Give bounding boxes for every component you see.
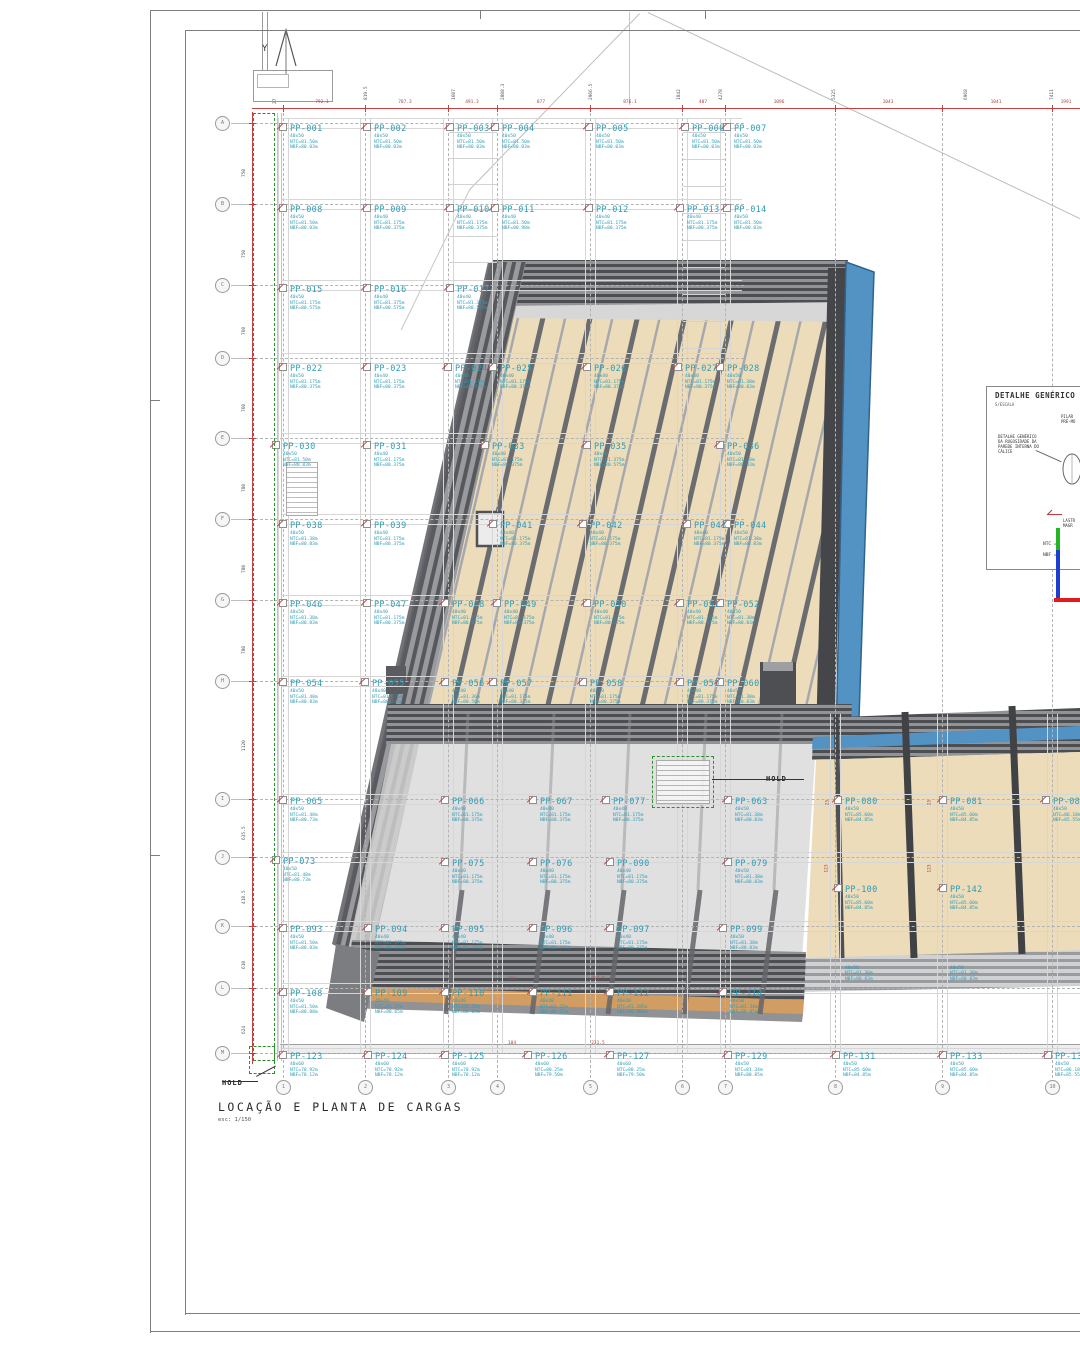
ladder-rung <box>683 267 725 268</box>
pile-properties: 40x50 NTC=81.48m NBF=80.73m <box>290 807 323 823</box>
pile-properties: 40x50 NTC=81.38m NBF=80.83m <box>730 935 763 951</box>
bubble-leader <box>231 204 250 205</box>
pile-properties: 40x50 NTC=81.50m NBF=80.03m <box>374 134 407 150</box>
grid-bubble-col: 3 <box>441 1080 456 1095</box>
pile-label: PP-05440x50 NTC=81.40m NBF=80.83m <box>290 680 323 706</box>
pile-properties: 40x50 NTC=85.60m NBF=84.85m <box>950 1062 983 1078</box>
beam-edge-line <box>947 714 948 1054</box>
pile-properties: 40x50 NTC=81.30m NBF=80.83m <box>950 966 978 982</box>
ladder-rung <box>683 159 725 160</box>
hold-wall-line <box>277 113 278 1061</box>
dim-value-rotated: 819.5 <box>364 60 369 100</box>
entrance-box-top <box>763 662 793 671</box>
beam-edge-line <box>595 118 596 1053</box>
dim-value-rotated: 7411 <box>1050 60 1055 100</box>
pile-properties: 40x50 NTC=81.38m NBF=80.83m <box>727 374 760 390</box>
pile-id: PP-097 <box>617 926 650 935</box>
sheet-fold-tick <box>150 400 160 401</box>
pile-label: PP-09040x40 NTC=81.175m NBF=80.375m <box>617 860 650 886</box>
pile-properties: 40x40 NTC=81.175m NBF=80.375m <box>617 935 650 951</box>
pile-id: PP-046 <box>290 601 323 610</box>
pile-id: PP-124 <box>375 1053 408 1062</box>
hold-boundary-strip <box>253 113 275 1061</box>
pile-label: PP-07340x50 NTC=81.48m NBF=80.73m <box>283 858 316 884</box>
sheet-scale-note: esc: 1/150 <box>218 1117 463 1123</box>
pile-id: PP-010 <box>457 206 490 215</box>
pile-id: PP-123 <box>290 1053 323 1062</box>
pile-label: PP-13140x50 NTC=85.60m NBF=84.85m <box>843 1053 876 1079</box>
grid-bubble-row: B <box>215 197 230 212</box>
pile-label: PP-03040x50 NTC=81.50m NBF=80.83m <box>283 443 316 469</box>
pile-label: PP-01440x50 NTC=81.50m NBF=80.03m <box>734 206 767 232</box>
pile-properties: 40x40 NTC=81.175m NBF=80.375m <box>374 452 407 468</box>
pile-id: PP-036 <box>727 443 760 452</box>
pile-label: PP-12540x60 NTC=78.92m NBF=78.12m <box>452 1053 485 1079</box>
pile-label: PP-03840x50 NTC=81.38m NBF=80.83m <box>290 522 323 548</box>
pile-id: PP-047 <box>374 601 407 610</box>
pile-properties: 40x40 NTC=81.175m NBF=80.375m <box>540 869 573 885</box>
dim-value: 123 <box>825 857 830 881</box>
dim-value: 877 <box>527 100 555 105</box>
pile-id: PP-013 <box>687 206 720 215</box>
pile-id: PP-093 <box>290 926 323 935</box>
pile-label: PP-12940x50 NTC=81.34m NBF=80.85m <box>735 1053 768 1079</box>
pile-label: PP-08140x50 NTC=85.60m NBF=84.85m <box>950 798 983 824</box>
pile-label: 40x50 NTC=81.30m NBF=80.83m <box>845 966 873 982</box>
bubble-leader <box>231 519 250 520</box>
ladder-rung <box>449 236 497 237</box>
pile-label: PP-00940x40 NTC=81.175m NBF=80.375m <box>374 206 407 232</box>
ladder-rung <box>683 294 725 295</box>
dim-value-rotated: 780 <box>242 626 247 654</box>
pile-properties: 40x40 NTC=81.175m NBF=80.375m <box>492 452 525 468</box>
pile-label: PP-04340x40 NTC=81.175m NBF=80.375m <box>694 522 727 548</box>
pile-id: PP-081 <box>950 798 983 807</box>
pile-properties: 40x50 NTC=81.175m NBF=80.375m <box>290 374 323 390</box>
grid-row-centerline <box>250 358 744 359</box>
ladder-rung <box>449 184 497 185</box>
pile-id: PP-135 <box>1055 1053 1080 1062</box>
pile-properties: 40x50 NTC=81.38m NBF=80.83m <box>290 531 323 547</box>
pile-properties: 40x50 NTC=81.175m NBF=80.575m <box>290 295 323 311</box>
pile-properties: 40x50 NTC=81.50m NBF=80.03m <box>692 134 725 150</box>
dimension-line-top <box>252 108 1080 109</box>
pile-properties: 40x50 NTC=85.60m NBF=84.85m <box>950 807 983 823</box>
detail-nbf-label: NBF = <box>1043 553 1057 558</box>
grid-bubble-col: 6 <box>675 1080 690 1095</box>
pile-label: PP-03540x40 NTC=81.375m NBF=80.575m <box>594 443 627 469</box>
pile-label: PP-00540x50 NTC=81.50m NBF=80.03m <box>596 125 629 151</box>
pile-id: PP-076 <box>540 860 573 869</box>
pile-id: PP-114 <box>730 990 763 999</box>
grid-bubble-col: 9 <box>935 1080 950 1095</box>
pile-id: PP-079 <box>735 860 768 869</box>
pile-id: PP-014 <box>734 206 767 215</box>
bubble-leader <box>231 1053 250 1054</box>
sheet-fold-tick <box>705 10 706 19</box>
pile-properties: 40x40 NTC=81.175m NBF=80.375m <box>372 689 405 705</box>
pile-properties: 40x40 NTC=81.36m NBF=80.56m <box>452 689 485 705</box>
bubble-leader <box>231 358 250 359</box>
pile-label: PP-02240x50 NTC=81.175m NBF=80.375m <box>290 365 323 391</box>
ladder-rung <box>683 240 725 241</box>
pile-id: PP-023 <box>374 365 407 374</box>
pile-properties: 40x40 NTC=81.175m NBF=80.375m <box>374 374 407 390</box>
dim-value-rotated: 750 <box>242 149 247 177</box>
hold-label-stairs: HOLD <box>766 766 787 785</box>
pile-id: PP-111 <box>540 990 573 999</box>
pile-properties: 40x50 NTC=81.30m NBF=80.83m <box>845 966 873 982</box>
pile-properties: 40x50 NTC=81.50m NBF=80.03m <box>734 215 767 231</box>
hold-label-bottom: HOLD <box>222 1070 243 1089</box>
pile-id: PP-056 <box>452 680 485 689</box>
pile-id: PP-039 <box>374 522 407 531</box>
detail-rugosidade-label: DETALHE GENÉRICO DA RUGOSIDADE DA PAREDE… <box>998 434 1039 454</box>
sheet-fold-tick <box>150 855 160 856</box>
pile-id: PP-002 <box>374 125 407 134</box>
grid-bubble-row: H <box>215 674 230 689</box>
grid-bubble-row: E <box>215 431 230 446</box>
pile-label: PP-01040x40 NTC=81.175m NBF=80.375m <box>457 206 490 232</box>
dim-value-rotated: 27 <box>273 80 278 104</box>
pile-label: PP-07940x50 NTC=81.38m NBF=80.83m <box>735 860 768 886</box>
pile-label: PP-01140x40 NTC=81.50m NBF=80.98m <box>502 206 535 232</box>
pile-properties: 40x40 NTC=81.175m NBF=80.375m <box>452 807 485 823</box>
hold-boundary-box <box>249 1046 275 1074</box>
pile-properties: 40x50 NTC=85.60m NBF=84.85m <box>845 807 878 823</box>
pile-id: PP-095 <box>452 926 485 935</box>
bubble-leader <box>231 438 250 439</box>
pile-id: PP-035 <box>594 443 627 452</box>
pile-id: PP-058 <box>590 680 623 689</box>
pile-properties: 40x50 NTC=81.40m NBF=80.83m <box>290 689 323 705</box>
dim-value: 1041 <box>982 100 1010 105</box>
sheet-border-top <box>150 10 1080 11</box>
pile-label: PP-10840x50 NTC=81.50m NBF=80.88m <box>290 990 323 1016</box>
pile-id: PP-025 <box>500 365 533 374</box>
pile-label: PP-09740x40 NTC=81.175m NBF=80.375m <box>617 926 650 952</box>
pile-properties: 40x50 NTC=81.38m NBF=80.83m <box>735 807 768 823</box>
pile-id: PP-073 <box>283 858 316 867</box>
beam-edge-line <box>830 714 831 1054</box>
pile-properties: 40x50 NTC=81.38m NBF=80.83m <box>727 610 760 626</box>
pile-id: PP-080 <box>845 798 878 807</box>
pile-id: PP-038 <box>290 522 323 531</box>
sheet-title: LOCAÇÃO E PLANTA DE CARGAS <box>218 1100 463 1114</box>
beam-edge-line <box>282 862 1080 863</box>
beam-edge-line <box>443 118 444 1053</box>
pile-id: PP-017 <box>457 286 490 295</box>
grid-bubble-col: 10 <box>1045 1080 1060 1095</box>
pile-id: PP-027 <box>685 365 718 374</box>
pile-label: PP-07740x40 NTC=81.175m NBF=80.375m <box>613 798 646 824</box>
pile-label: PP-09540x40 NTC=81.175m NBF=80.375m <box>452 926 485 952</box>
pile-label: PP-09940x50 NTC=81.38m NBF=80.83m <box>730 926 763 952</box>
grid-row-centerline <box>250 681 744 682</box>
pile-properties: 40x40 NTC=81.285m NBF=80.605m <box>617 999 650 1015</box>
beam-edge-line <box>677 118 678 1053</box>
beam-edge-line <box>282 1048 1080 1049</box>
dim-value: 231.5 <box>586 977 610 982</box>
bim-model-overlay <box>0 0 1080 1350</box>
pile-id: PP-112 <box>617 990 650 999</box>
grid-bubble-row: A <box>215 116 230 131</box>
pile-id: PP-057 <box>500 680 533 689</box>
dim-value-rotated: 780 <box>242 464 247 492</box>
pile-properties: 40x40 NTC=81.175m NBF=80.375m <box>687 610 720 626</box>
pile-label: PP-00140x50 NTC=81.50m NBF=80.03m <box>290 125 323 151</box>
pile-label: PP-00340x50 NTC=81.50m NBF=80.03m <box>457 125 490 151</box>
dim-value-rotated: 6968 <box>964 60 969 100</box>
pile-label: PP-00740x50 NTC=81.50m NBF=80.03m <box>734 125 767 151</box>
pile-properties: 40x50 NTC=81.50m NBF=80.88m <box>290 999 323 1015</box>
pile-id: PP-006 <box>692 125 725 134</box>
pile-properties: 40x50 NTC=81.50m NBF=80.03m <box>290 215 323 231</box>
hold-detail-box <box>652 756 714 808</box>
pile-id: PP-052 <box>727 601 760 610</box>
beam-edge-line <box>278 118 279 1053</box>
pile-id: PP-007 <box>734 125 767 134</box>
beam-edge-line <box>288 118 289 1053</box>
pile-properties: 40x50 NTC=81.48m NBF=80.73m <box>283 867 316 883</box>
beam-edge-line <box>720 118 721 1053</box>
ladder-rung <box>683 321 725 322</box>
grid-row-centerline <box>250 519 744 520</box>
grid-col-centerline <box>1052 113 1053 1078</box>
pile-properties: 40x40 NTC=81.175m NBF=80.375m <box>504 610 537 626</box>
bubble-leader <box>231 988 250 989</box>
pile-label: PP-05040x40 NTC=81.175m NBF=80.375m <box>594 601 627 627</box>
grid-col-centerline <box>942 113 943 1078</box>
ladder-rung <box>449 262 497 263</box>
pile-properties: 40x40 NTC=81.175m NBF=80.375m <box>590 531 623 547</box>
pile-label: PP-01740x40 NTC=81.375m NBF=80.575m <box>457 286 490 312</box>
beam-edge-line <box>282 595 742 596</box>
pile-properties: 40x50 NTC=85.60m NBF=84.85m <box>843 1062 876 1078</box>
beam-edge-line <box>1047 714 1048 1054</box>
dim-value-rotated: 760 <box>242 384 247 412</box>
dim-value: 1096 <box>765 100 793 105</box>
bubble-leader <box>231 926 250 927</box>
dim-value: 1043 <box>874 100 902 105</box>
pile-id: PP-129 <box>735 1053 768 1062</box>
pile-label: PP-04840x40 NTC=81.175m NBF=80.375m <box>452 601 485 627</box>
grid-row-centerline <box>250 438 744 439</box>
beam-edge-line <box>502 118 503 1053</box>
pile-label: PP-05140x40 NTC=81.175m NBF=80.375m <box>687 601 720 627</box>
pile-properties: 40x40 NTC=81.175m NBF=80.375m <box>452 869 485 885</box>
pile-label: PP-07640x40 NTC=81.175m NBF=80.375m <box>540 860 573 886</box>
pile-id: PP-050 <box>594 601 627 610</box>
pile-label: PP-00440x50 NTC=81.50m NBF=80.03m <box>502 125 535 151</box>
y-axis-label: Y <box>262 44 267 54</box>
pile-label: PP-14240x50 NTC=85.60m NBF=84.85m <box>950 886 983 912</box>
grid-bubble-col: 7 <box>718 1080 733 1095</box>
pile-label: PP-08240x50 NTC=86.18m NBF=85.55m <box>1053 798 1080 824</box>
dim-value: 25 <box>928 791 933 815</box>
pile-label: PP-13540x50 NTC=86.18m NBF=85.55m <box>1055 1053 1080 1079</box>
grid-col-centerline <box>835 113 836 1078</box>
pile-id: PP-065 <box>290 798 323 807</box>
axis-blue-segment <box>1056 550 1060 602</box>
pile-id: PP-011 <box>502 206 535 215</box>
pile-properties: 40x50 NTC=81.50m NBF=80.83m <box>290 935 323 951</box>
bubble-leader <box>231 799 250 800</box>
detail-lastro-label: LASTR MAGR <box>1063 518 1075 528</box>
grid-bubble-col: 8 <box>828 1080 843 1095</box>
pile-properties: 40x40 NTC=81.175m NBF=80.375m <box>374 215 407 231</box>
pile-id: PP-033 <box>492 443 525 452</box>
pile-id: PP-133 <box>950 1053 983 1062</box>
pile-id: PP-066 <box>452 798 485 807</box>
pile-properties: 40x60 NTC=80.25m NBF=79.50m <box>535 1062 568 1078</box>
pile-label: PP-05840x40 NTC=81.175m NBF=80.375m <box>590 680 623 706</box>
pile-properties: 40x50 NTC=81.34m NBF=80.85m <box>735 1062 768 1078</box>
grid-bubble-col: 5 <box>583 1080 598 1095</box>
pile-id: PP-110 <box>452 990 485 999</box>
detail-pilar-label: PILAR PRÉ-MO <box>1061 414 1075 424</box>
grid-bubble-col: 1 <box>276 1080 291 1095</box>
pile-id: PP-096 <box>540 926 573 935</box>
pile-label: PP-02540x40 NTC=81.175m NBF=80.375m <box>500 365 533 391</box>
dim-value: 787.3 <box>391 100 419 105</box>
pile-id: PP-126 <box>535 1053 568 1062</box>
pile-label: PP-02740x40 NTC=81.175m NBF=80.375m <box>685 365 718 391</box>
dim-value-rotated: 2808.3 <box>501 60 506 100</box>
pile-id: PP-090 <box>617 860 650 869</box>
sheet-border-bottom <box>150 1331 1080 1332</box>
pile-label: PP-01640x40 NTC=81.375m NBF=80.575m <box>374 286 407 312</box>
level-tick <box>1048 514 1062 515</box>
pile-label: PP-04240x40 NTC=81.175m NBF=80.375m <box>590 522 623 548</box>
pile-label: PP-05240x50 NTC=81.38m NBF=80.83m <box>727 601 760 627</box>
dim-value: 104 <box>500 1041 524 1046</box>
dim-value-rotated: 750 <box>242 230 247 258</box>
beam-edge-line <box>585 118 586 1053</box>
pile-properties: 40x40 NTC=81.175m NBF=80.375m <box>374 531 407 547</box>
pile-properties: 40x50 NTC=86.18m NBF=85.55m <box>1055 1062 1080 1078</box>
sheet-fold-tick <box>480 10 481 19</box>
pile-label: PP-04940x40 NTC=81.175m NBF=80.375m <box>504 601 537 627</box>
pile-properties: 40x40 NTC=81.175m NBF=80.375m <box>594 374 627 390</box>
pile-label: PP-06740x40 NTC=81.175m NBF=80.375m <box>540 798 573 824</box>
pile-properties: 40x40 NTC=81.175m NBF=80.375m <box>596 215 629 231</box>
pile-label: 40x50 NTC=81.30m NBF=80.83m <box>950 966 978 982</box>
pile-properties: 40x50 NTC=85.60m NBF=84.85m <box>950 895 983 911</box>
pile-label: PP-06040x50 NTC=81.38m NBF=80.83m <box>727 680 760 706</box>
grid-bubble-row: F <box>215 512 230 527</box>
beam-edge-line <box>1057 714 1058 1054</box>
bubble-leader <box>231 857 250 858</box>
beam-edge-line <box>282 852 1080 853</box>
pile-id: PP-043 <box>694 522 727 531</box>
beam-edge-line <box>282 118 742 119</box>
grid-bubble-row: J <box>215 850 230 865</box>
pile-label: PP-01240x40 NTC=81.175m NBF=80.375m <box>596 206 629 232</box>
beam-edge-line <box>282 921 1080 922</box>
dim-value-rotated: 2966.5 <box>589 60 594 100</box>
pile-label: PP-02840x50 NTC=81.38m NBF=80.83m <box>727 365 760 391</box>
title-block: LOCAÇÃO E PLANTA DE CARGAS esc: 1/150 <box>218 1100 463 1123</box>
pile-properties: 40x40 NTC=81.175m NBF=80.375m <box>540 935 573 951</box>
pile-label: PP-02440x40 NTC=81.175m NBF=80.375m <box>455 365 488 391</box>
pile-properties: 40x50 NTC=81.50m NBF=80.03m <box>457 134 490 150</box>
pile-label: PP-06540x50 NTC=81.48m NBF=80.73m <box>290 798 323 824</box>
pile-id: PP-075 <box>452 860 485 869</box>
sheet-border-left <box>150 10 151 1333</box>
pile-id: PP-054 <box>290 680 323 689</box>
pile-properties: 40x40 NTC=81.175m NBF=80.375m <box>685 374 718 390</box>
pile-label: PP-06340x50 NTC=81.38m NBF=80.83m <box>735 798 768 824</box>
beam-edge-line <box>492 118 493 1053</box>
pile-id: PP-127 <box>617 1053 650 1062</box>
pile-properties: 40x60 NTC=80.25m NBF=79.50m <box>617 1062 650 1078</box>
pile-id: PP-008 <box>290 206 323 215</box>
pile-properties: 40x60 NTC=78.92m NBF=78.12m <box>375 1062 408 1078</box>
dim-value-rotated: 624 <box>242 1006 247 1034</box>
beam-edge-line <box>453 118 454 1053</box>
pile-properties: 40x50 NTC=81.38m NBF=80.83m <box>290 610 323 626</box>
dim-value: 231.5 <box>586 1041 610 1046</box>
beam-edge-line <box>282 290 742 291</box>
pile-label: PP-10040x50 NTC=85.60m NBF=84.85m <box>845 886 878 912</box>
pile-properties: 40x60 NTC=78.92m NBF=78.12m <box>452 1062 485 1078</box>
dim-value-rotated: 610 <box>242 941 247 969</box>
pile-label: PP-05740x40 NTC=81.175m NBF=80.375m <box>500 680 533 706</box>
detail-box-scale: S/ESCALA <box>995 402 1014 407</box>
pile-properties: 40x50 NTC=81.50m NBF=80.03m <box>290 134 323 150</box>
bubble-leader <box>231 123 250 124</box>
pile-label: PP-00840x50 NTC=81.50m NBF=80.03m <box>290 206 323 232</box>
pile-label: PP-12640x60 NTC=80.25m NBF=79.50m <box>535 1053 568 1079</box>
pile-id: PP-016 <box>374 286 407 295</box>
pile-label: PP-09640x40 NTC=81.175m NBF=80.375m <box>540 926 573 952</box>
dim-value-rotated: 4278 <box>719 60 724 100</box>
dim-value: 104 <box>500 977 524 982</box>
dim-value-rotated: 1120 <box>242 723 247 751</box>
beam-edge-line <box>687 118 688 1053</box>
pile-id: PP-131 <box>843 1053 876 1062</box>
pile-properties: 40x40 NTC=81.375m NBF=80.575m <box>374 295 407 311</box>
dim-value-rotated: 1607 <box>452 60 457 100</box>
pile-label: PP-04140x40 NTC=81.175m NBF=80.375m <box>500 522 533 548</box>
pile-id: PP-003 <box>457 125 490 134</box>
ladder-rung <box>449 158 497 159</box>
pile-properties: 40x50 NTC=81.38m NBF=80.83m <box>735 869 768 885</box>
pile-id: PP-001 <box>290 125 323 134</box>
pile-id: PP-022 <box>290 365 323 374</box>
grid-bubble-row: L <box>215 981 230 996</box>
pile-id: PP-099 <box>730 926 763 935</box>
detail-ntc-label: NTC = <box>1043 542 1057 547</box>
grid-bubble-col: 2 <box>358 1080 373 1095</box>
pile-properties: 40x60 NTC=78.92m NBF=78.12m <box>290 1062 323 1078</box>
pile-id: PP-094 <box>375 926 408 935</box>
pile-label: PP-04740x40 NTC=81.175m NBF=80.375m <box>374 601 407 627</box>
pile-properties: 40x50 NTC=81.38m NBF=80.83m <box>727 689 760 705</box>
pile-label: PP-09440x40 NTC=81.175m NBF=80.375m <box>375 926 408 952</box>
hold-wall-line <box>281 113 282 1061</box>
pile-properties: 40x40 NTC=81.175m NBF=80.375m <box>687 689 720 705</box>
beam-edge-line <box>282 199 742 200</box>
pile-id: PP-042 <box>590 522 623 531</box>
bubble-leader <box>231 681 250 682</box>
dim-value: 491.3 <box>458 100 486 105</box>
pile-properties: 40x40 NTC=81.25m NBF=80.65m <box>540 999 573 1015</box>
pile-properties: 40x40 NTC=81.375m NBF=80.575m <box>457 295 490 311</box>
beam-edge-line <box>360 118 361 1053</box>
lower-hall-floor <box>348 712 818 960</box>
